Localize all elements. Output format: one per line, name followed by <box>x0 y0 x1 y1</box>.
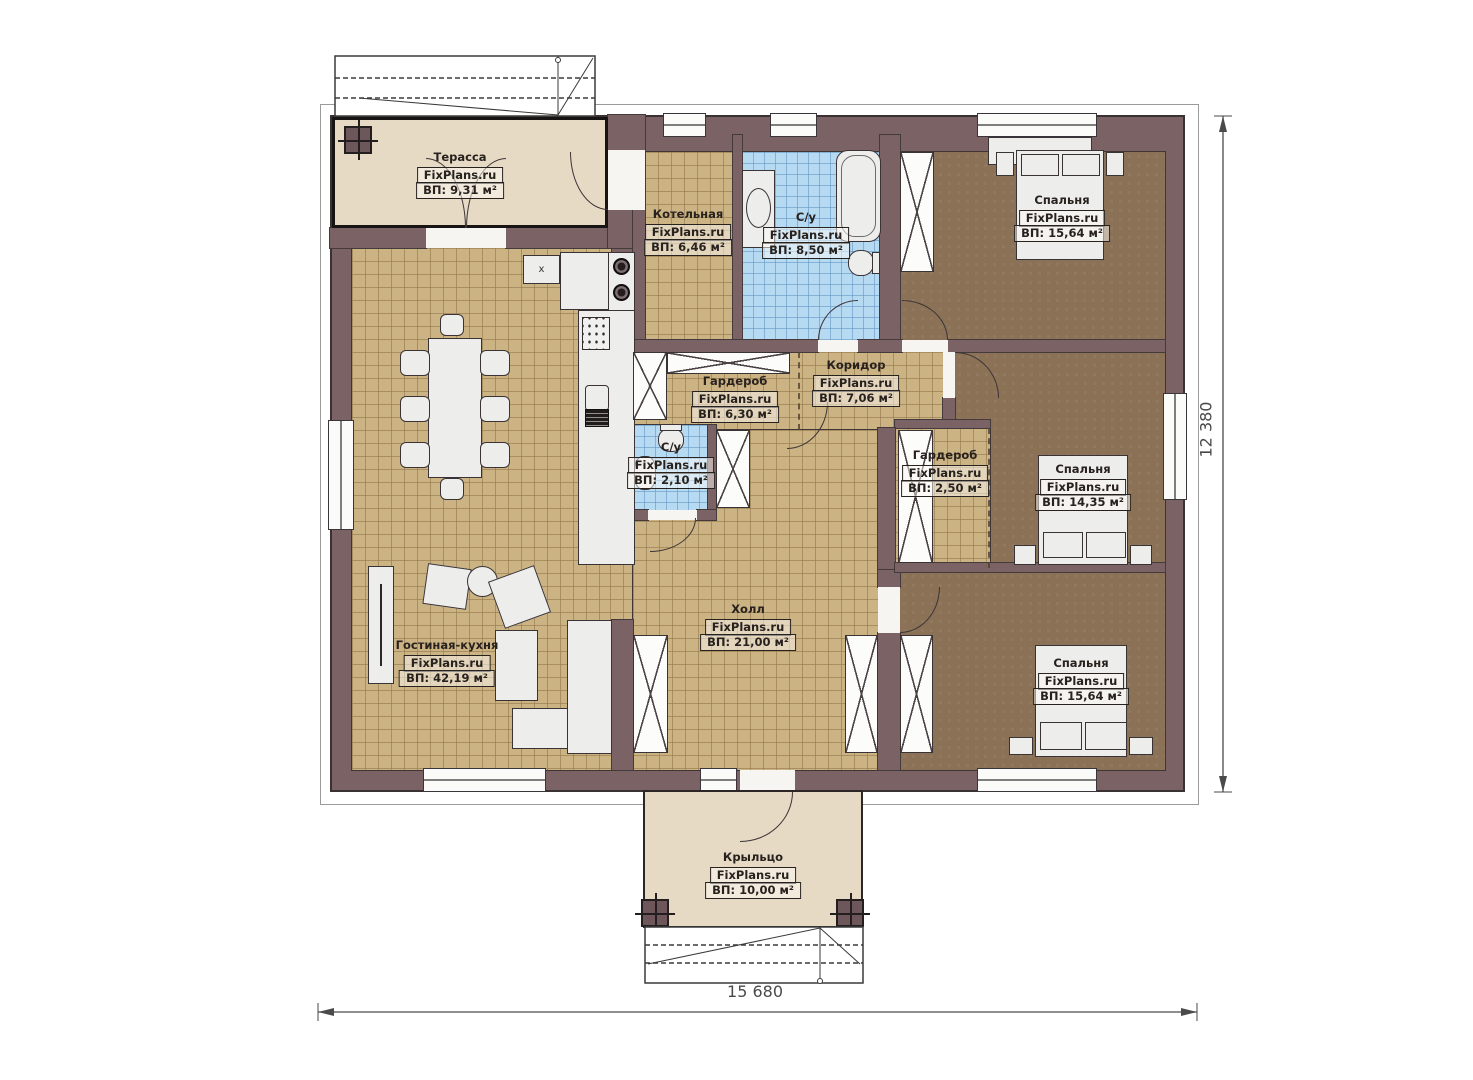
doorway-bedroom-bottom <box>878 587 900 633</box>
room-name: Коридор <box>826 358 885 373</box>
room-name: Терасса <box>433 150 486 165</box>
wall-wardrobe-small-north <box>895 420 990 428</box>
wall-hall-wardrobe-small <box>878 428 895 570</box>
room-label-boiler: Котельная FixPlans.ru ВП: 6,46 м² <box>644 207 732 256</box>
chair <box>480 442 510 468</box>
brand-badge: FixPlans.ru <box>763 227 850 244</box>
nightstand <box>1106 152 1124 176</box>
room-area: ВП: 2,10 м² <box>627 472 715 489</box>
window-bedroom-middle-east <box>1163 393 1187 500</box>
room-area: ВП: 10,00 м² <box>705 882 801 899</box>
coffee-table <box>495 630 538 701</box>
room-label-bathroom-main: С/у FixPlans.ru ВП: 8,50 м² <box>762 210 850 259</box>
dining-table <box>428 338 482 478</box>
wall-terrace-south-left <box>330 228 426 248</box>
room-label-living-kitchen: Гостиная-кухня FixPlans.ru ВП: 42,19 м² <box>396 638 499 687</box>
doorway-entry <box>740 770 795 792</box>
terrace-column <box>344 126 372 154</box>
room-name: С/у <box>796 210 816 225</box>
brand-badge: FixPlans.ru <box>1040 479 1127 496</box>
doorway-bedroom-middle <box>943 352 955 398</box>
room-area: ВП: 8,50 м² <box>762 242 850 259</box>
wall-bath-bedroom <box>880 135 900 340</box>
wall-mid-horizontal-b <box>858 340 902 352</box>
window-entry-sidelight <box>700 768 737 792</box>
room-name: Спальня <box>1053 656 1108 671</box>
room-name: Гардероб <box>913 448 978 463</box>
brand-badge: FixPlans.ru <box>813 375 900 392</box>
room-name: Крыльцо <box>723 850 783 865</box>
wardrobe-unit <box>845 635 878 753</box>
chair <box>400 396 430 422</box>
wall-bath-small-south-b <box>697 510 716 520</box>
doorway-bedroom-top <box>902 340 948 352</box>
sofa-section-horizontal <box>512 708 568 749</box>
sofa-section-vertical <box>567 620 612 754</box>
wall-hall-bedroom-bottom-b <box>878 633 900 770</box>
wall-terrace-east-upper <box>608 115 645 150</box>
brand-badge: FixPlans.ru <box>1038 673 1125 690</box>
floor-passage <box>610 560 635 620</box>
tv-icon <box>380 584 382 666</box>
doorway-terrace-side <box>608 150 645 210</box>
wall-mid-horizontal-c <box>948 340 1165 352</box>
porch-column-left <box>641 899 669 927</box>
chair <box>440 478 464 500</box>
pillow <box>1040 722 1082 750</box>
pillow <box>1085 722 1127 750</box>
floor-plan-canvas: x <box>0 0 1473 1080</box>
room-area: ВП: 9,31 м² <box>416 182 504 199</box>
stove-burner-icon <box>613 284 630 301</box>
window-bedroom-top <box>977 113 1097 137</box>
room-label-bedroom-top: Спальня FixPlans.ru ВП: 15,64 м² <box>1014 193 1110 242</box>
chair <box>400 350 430 376</box>
room-name: Холл <box>731 602 765 617</box>
pillow <box>1021 154 1059 176</box>
room-label-bedroom-bottom: Спальня FixPlans.ru ВП: 15,64 м² <box>1033 656 1129 705</box>
room-name: С/у <box>661 440 681 455</box>
room-label-hall: Холл FixPlans.ru ВП: 21,00 м² <box>700 602 796 651</box>
wardrobe-unit <box>633 635 668 753</box>
dishwasher-icon <box>585 409 609 427</box>
chair <box>480 350 510 376</box>
room-area: ВП: 6,46 м² <box>644 239 732 256</box>
wall-mid-horizontal-a <box>633 340 818 352</box>
room-label-wardrobe-main: Гардероб FixPlans.ru ВП: 6,30 м² <box>691 374 779 423</box>
nightstand <box>1014 545 1036 565</box>
room-label-bathroom-small: С/у FixPlans.ru ВП: 2,10 м² <box>627 440 715 489</box>
porch-column-right <box>836 899 864 927</box>
room-area: ВП: 21,00 м² <box>700 634 796 651</box>
dimension-height-label: 12 380 <box>1197 390 1216 470</box>
pillow <box>1062 154 1100 176</box>
stove-burner-icon <box>613 258 630 275</box>
doorway-bathroom-main <box>818 340 858 352</box>
wall-hall-bedroom-bottom-a <box>878 570 900 587</box>
wardrobe-unit <box>900 635 933 753</box>
wardrobe-unit <box>900 152 934 272</box>
pillow <box>1086 532 1126 558</box>
nightstand <box>1009 737 1033 755</box>
nightstand <box>996 152 1014 176</box>
terrace-stairs <box>334 55 596 117</box>
toilet-icon <box>848 250 874 276</box>
chair <box>440 314 464 336</box>
chair <box>480 396 510 422</box>
brand-badge: FixPlans.ru <box>417 167 504 184</box>
wardrobe-unit <box>667 352 790 374</box>
room-label-bedroom-middle: Спальня FixPlans.ru ВП: 14,35 м² <box>1035 462 1131 511</box>
room-area: ВП: 6,30 м² <box>691 406 779 423</box>
nightstand <box>1130 545 1152 565</box>
doorway-terrace-french <box>426 228 506 248</box>
wall-living-hall-lower <box>612 620 633 770</box>
room-label-porch: Крыльцо FixPlans.ru ВП: 10,00 м² <box>705 850 801 899</box>
pillow <box>1043 532 1083 558</box>
brand-badge: FixPlans.ru <box>404 655 491 672</box>
room-area: ВП: 2,50 м² <box>901 480 989 497</box>
brand-badge: FixPlans.ru <box>705 619 792 636</box>
window-bedroom-bottom-south <box>977 768 1097 792</box>
room-area: ВП: 15,64 м² <box>1033 688 1129 705</box>
room-name: Гостиная-кухня <box>396 638 499 653</box>
window-boiler <box>663 113 706 137</box>
brand-badge: FixPlans.ru <box>645 224 732 241</box>
brand-badge: FixPlans.ru <box>902 465 989 482</box>
room-label-wardrobe-small: Гардероб FixPlans.ru ВП: 2,50 м² <box>901 448 989 497</box>
room-name: Гардероб <box>703 374 768 389</box>
oven-icon <box>582 317 610 350</box>
room-area: ВП: 15,64 м² <box>1014 225 1110 242</box>
room-label-terrace: Терасса FixPlans.ru ВП: 9,31 м² <box>416 150 504 199</box>
dimension-line-bottom <box>310 999 1205 1027</box>
toilet-tank <box>872 252 880 274</box>
room-name: Котельная <box>653 207 724 222</box>
window-living-south <box>423 768 546 792</box>
brand-badge: FixPlans.ru <box>692 391 779 408</box>
wall-bath-small-south-a <box>633 510 648 520</box>
brand-badge: FixPlans.ru <box>710 867 797 884</box>
wardrobe-unit <box>716 430 750 508</box>
room-area: ВП: 7,06 м² <box>812 390 900 407</box>
kitchen-island-unit: x <box>523 255 560 284</box>
room-area: ВП: 14,35 м² <box>1035 494 1131 511</box>
toilet-tank <box>660 424 682 431</box>
room-area: ВП: 42,19 м² <box>399 670 495 687</box>
room-label-corridor: Коридор FixPlans.ru ВП: 7,06 м² <box>812 358 900 407</box>
nightstand <box>1129 737 1153 755</box>
wall-boiler-bath <box>733 135 742 340</box>
wardrobe-unit <box>633 352 667 420</box>
kitchen-sink-icon <box>585 385 609 411</box>
room-name: Спальня <box>1055 462 1110 477</box>
porch-steps <box>644 926 864 984</box>
dimension-width-label: 15 680 <box>727 982 783 1001</box>
chair <box>400 442 430 468</box>
window-living-west <box>328 420 354 530</box>
brand-badge: FixPlans.ru <box>1019 210 1106 227</box>
window-bathroom-main <box>770 113 817 137</box>
armchair <box>422 563 471 610</box>
room-name: Спальня <box>1034 193 1089 208</box>
brand-badge: FixPlans.ru <box>628 457 715 474</box>
